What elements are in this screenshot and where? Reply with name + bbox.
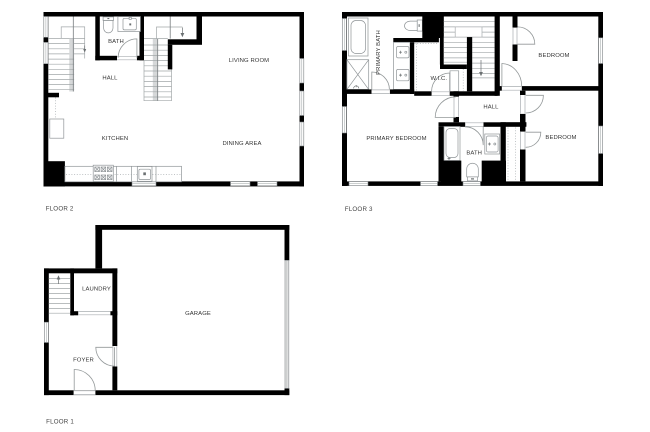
svg-text:LAUNDRY: LAUNDRY — [82, 286, 111, 292]
svg-text:BEDROOM: BEDROOM — [545, 135, 576, 141]
svg-text:BATH: BATH — [108, 39, 124, 45]
svg-text:PRIMARY BEDROOM: PRIMARY BEDROOM — [366, 136, 426, 142]
svg-text:BEDROOM: BEDROOM — [538, 53, 569, 59]
svg-text:LIVING ROOM: LIVING ROOM — [229, 58, 269, 64]
svg-text:KITCHEN: KITCHEN — [102, 136, 129, 142]
svg-text:W.I.C.: W.I.C. — [430, 76, 447, 82]
svg-text:FLOOR 2: FLOOR 2 — [46, 205, 74, 212]
svg-text:BATH: BATH — [466, 150, 482, 156]
svg-text:FOYER: FOYER — [73, 358, 94, 364]
svg-text:GARAGE: GARAGE — [185, 311, 211, 317]
svg-text:HALL: HALL — [483, 105, 499, 111]
svg-text:HALL: HALL — [102, 76, 118, 82]
svg-text:PRIMARY BATH: PRIMARY BATH — [376, 30, 382, 75]
svg-text:FLOOR 3: FLOOR 3 — [345, 206, 373, 213]
svg-text:DINING AREA: DINING AREA — [222, 141, 261, 147]
svg-text:FLOOR 1: FLOOR 1 — [46, 418, 74, 425]
